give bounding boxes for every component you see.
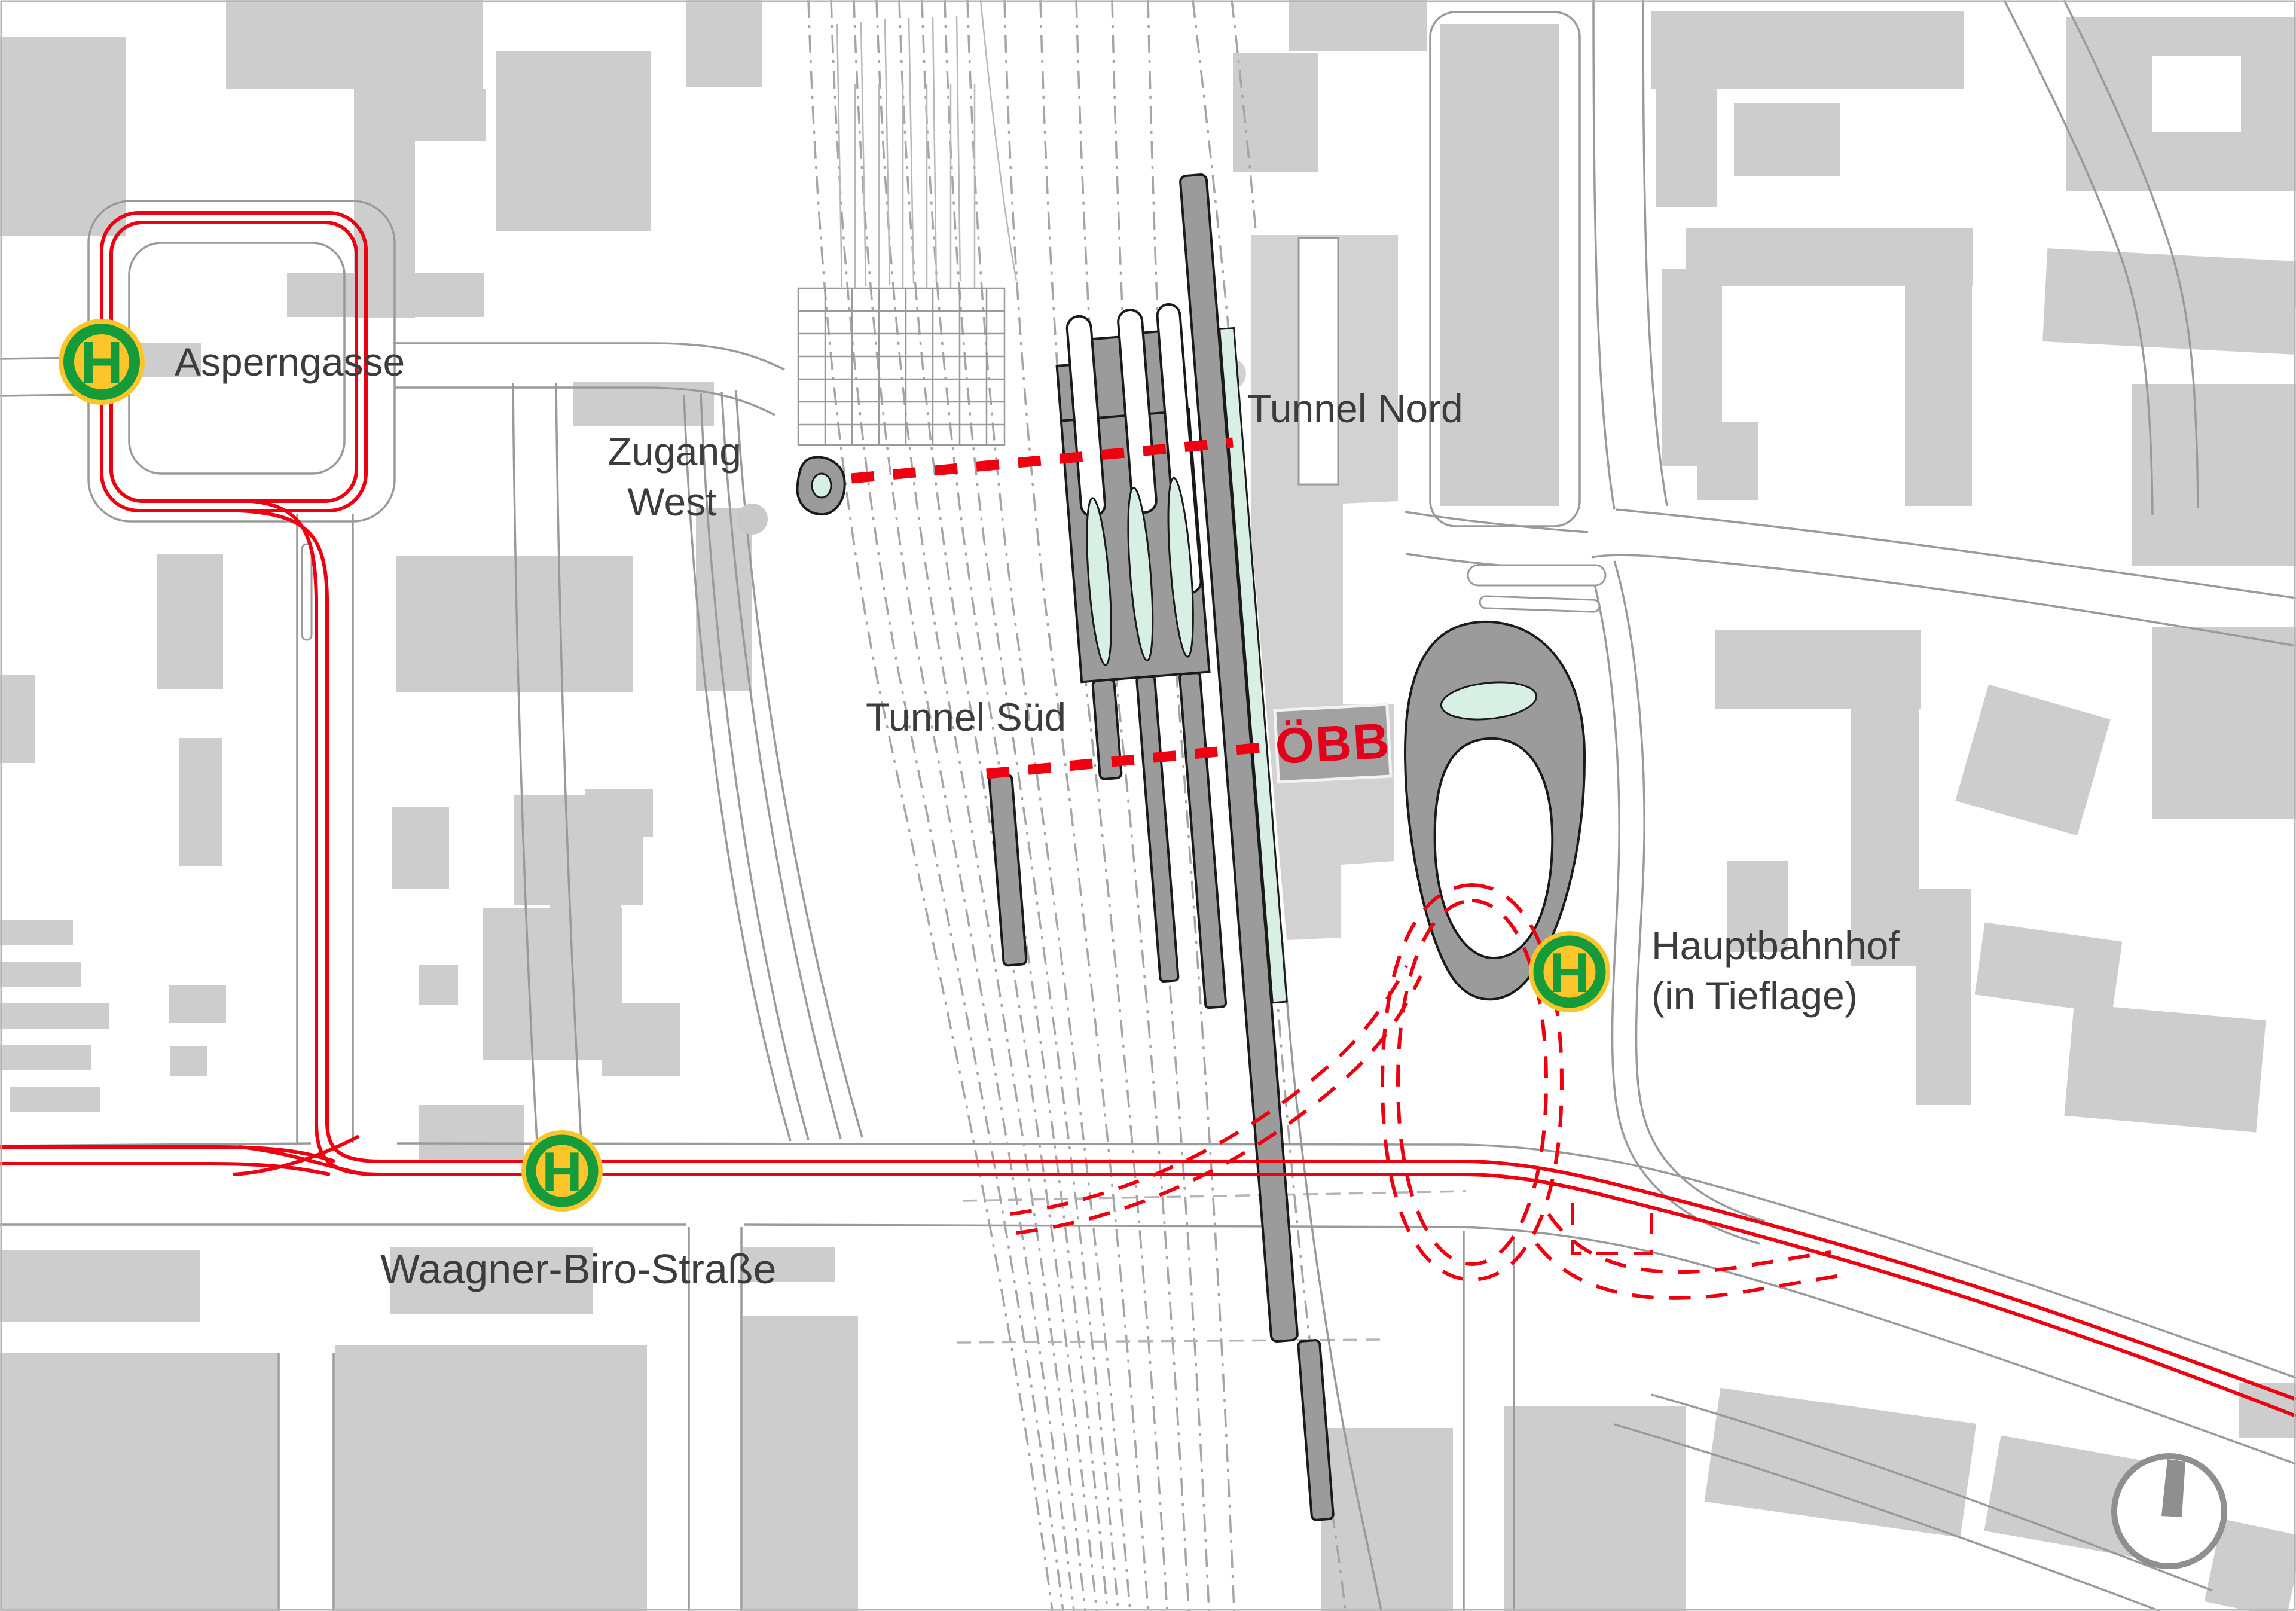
obb-logo-text: ÖBB [1274, 712, 1391, 774]
h-stop-icon-waagner-biro: H [521, 1130, 603, 1212]
svg-text:H: H [1549, 941, 1590, 1004]
north-arrow-icon [2114, 1456, 2224, 1566]
label-tunnel-sued: Tunnel Süd [866, 695, 1066, 739]
ring-inner-hole [1435, 739, 1553, 958]
h-stop-icon-asperngasse: H [59, 319, 145, 405]
city-map: ÖBB H H H Asperngasse Zugang West Tunnel… [0, 0, 2296, 1611]
label-hauptbahnhof-sub: (in Tieflage) [1651, 974, 1858, 1018]
label-asperngasse: Asperngasse [175, 340, 405, 384]
label-hauptbahnhof: Hauptbahnhof [1651, 923, 1900, 968]
label-waagner-biro-strasse: Waagner-Biro-Straße [380, 1246, 777, 1292]
obb-logo-box: ÖBB [1274, 704, 1393, 782]
label-zugang-west-1: Zugang [607, 429, 741, 474]
h-stop-icon-hauptbahnhof: H [1529, 931, 1610, 1012]
label-tunnel-nord: Tunnel Nord [1247, 386, 1463, 431]
label-zugang-west-2: West [627, 480, 716, 524]
svg-text:H: H [542, 1140, 582, 1203]
svg-text:H: H [80, 329, 123, 396]
station-courtyard [1299, 238, 1338, 484]
